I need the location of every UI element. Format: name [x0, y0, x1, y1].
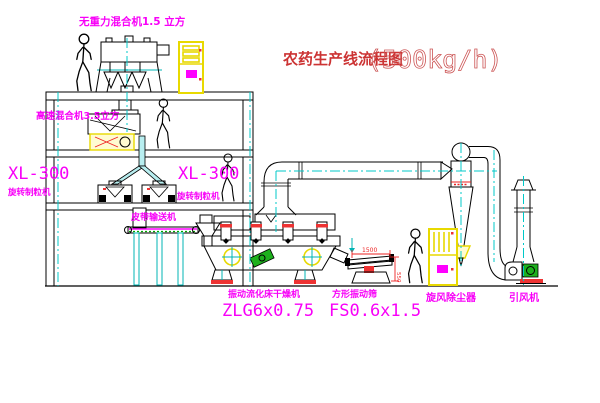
title-capacity: (500kg/h): [367, 45, 502, 74]
square-sieve: [345, 238, 399, 283]
diagram-drawing: 农药生产线流程图 (500kg/h) 无重力混合机1.5 立方 高速混合机3.5…: [0, 0, 600, 403]
dryer-motor: [250, 249, 274, 267]
process-flow-diagram: 农药生产线流程图 (500kg/h) 无重力混合机1.5 立方 高速混合机3.5…: [0, 0, 600, 403]
dryer-model-label: ZLG6x0.75: [222, 301, 314, 321]
control-cabinet-bottom: [429, 229, 457, 285]
person-figure-4: [409, 229, 423, 283]
cabinet-label-block: [186, 70, 197, 78]
person-figure-2: [157, 99, 169, 148]
sieve-dim-height: 550: [395, 272, 401, 283]
sieve-dim-width: 1500: [362, 247, 377, 254]
cabinet-label-block: [437, 265, 448, 273]
dryer-name-label: 振动流化床干燥机: [228, 288, 300, 300]
granulator-mid-name: 旋转制粒机: [176, 191, 220, 202]
fluid-bed-dryer: [196, 214, 348, 284]
granulator-mid-model: XL-300: [178, 164, 239, 184]
dryer-inlet-ports: [220, 222, 328, 240]
granulator-left-name: 旋转制粒机: [7, 187, 51, 198]
second-mixer-label: 高速混合机3.5立方: [36, 110, 120, 122]
sieve-model-label: FS0.6x1.5: [329, 301, 421, 321]
belt-conveyor-label: 皮带输送机: [130, 211, 176, 223]
sieve-name-label: 方形振动筛: [332, 288, 377, 300]
fan-motor: [523, 264, 538, 277]
cyclone-label: 旋风除尘器: [425, 291, 477, 304]
fan-label: 引风机: [509, 291, 539, 304]
top-mixer-label: 无重力混合机1.5 立方: [78, 15, 186, 28]
dryer-feet: [211, 270, 316, 284]
granulator-left-model: XL-300: [8, 164, 69, 184]
cyclone-outlet-duct: [469, 147, 513, 281]
labels: 农药生产线流程图 (500kg/h) 无重力混合机1.5 立方 高速混合机3.5…: [7, 15, 539, 321]
induced-draft-fan: [505, 262, 546, 284]
deck-bolt-marks: [223, 238, 325, 244]
gravity-free-mixer: [96, 36, 169, 92]
second-floor-mixer: [88, 100, 140, 150]
granulator-mid-unit: [142, 181, 176, 203]
control-cabinet-top: [179, 42, 203, 93]
person-figure-1: [77, 34, 91, 90]
